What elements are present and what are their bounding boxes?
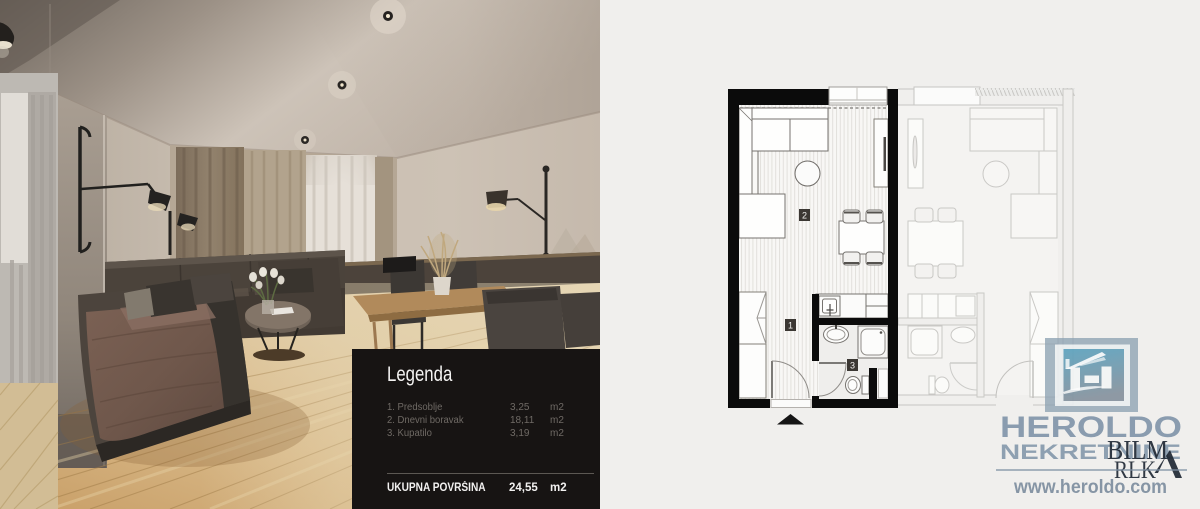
- svg-text:www.heroldo.com: www.heroldo.com: [1013, 477, 1167, 498]
- svg-text:1: 1: [788, 321, 793, 331]
- svg-text:3: 3: [850, 361, 855, 371]
- svg-text:2: 2: [802, 211, 807, 221]
